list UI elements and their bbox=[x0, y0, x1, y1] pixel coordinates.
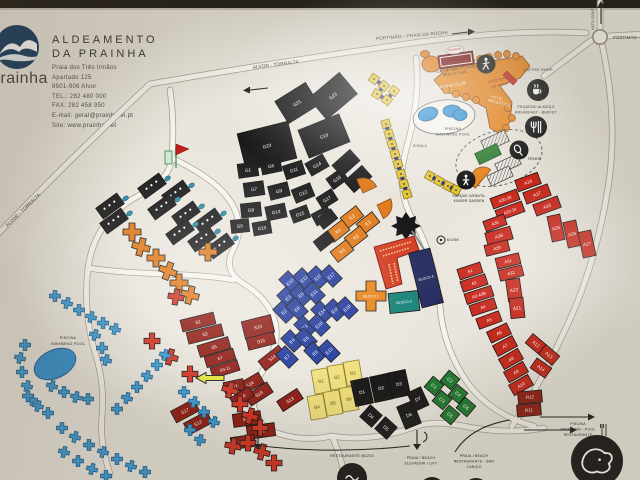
map-label: PISCINA bbox=[570, 422, 586, 426]
building-g23: G23 bbox=[309, 72, 358, 119]
building-label: R11 bbox=[525, 407, 534, 413]
building-label: A21 bbox=[513, 305, 522, 311]
map-label: BREAKFAST - BUFFET bbox=[515, 111, 557, 115]
building bbox=[112, 404, 123, 415]
building bbox=[60, 296, 73, 309]
building-g9: G9 bbox=[268, 182, 291, 200]
swimming-pool bbox=[453, 110, 467, 121]
map-label: PARQUE INFANTIL bbox=[453, 194, 486, 198]
building bbox=[108, 322, 121, 335]
map-label: SWIMMING POOL bbox=[436, 133, 470, 137]
building bbox=[140, 369, 153, 382]
building-label: G8 bbox=[248, 207, 255, 213]
map-label: COFFEE SHOP bbox=[523, 68, 553, 72]
building bbox=[69, 390, 82, 403]
building bbox=[85, 462, 98, 475]
building bbox=[123, 223, 141, 241]
building-bloco-3: BLOCO 3 bbox=[388, 290, 420, 313]
map-label: CANIÇO bbox=[466, 465, 481, 469]
building-g7: G7 bbox=[243, 181, 265, 198]
map-label: TÉNIS bbox=[528, 156, 541, 161]
building bbox=[112, 454, 123, 465]
entrance-sign bbox=[165, 151, 172, 164]
building bbox=[98, 318, 109, 329]
map-label: PRAIA / BEACH bbox=[460, 454, 489, 458]
kiosk-icon-dot bbox=[440, 239, 442, 241]
building bbox=[147, 249, 165, 267]
building bbox=[377, 199, 397, 219]
map-label: ALVOR - TORRALTA bbox=[5, 192, 42, 228]
building bbox=[83, 394, 94, 405]
building bbox=[57, 445, 70, 458]
pool-restaurant-icon bbox=[571, 435, 623, 480]
pedestrian-icon bbox=[477, 55, 496, 74]
building-g1: G1 bbox=[237, 162, 259, 179]
building-r11: R11 bbox=[517, 403, 542, 417]
building bbox=[20, 340, 31, 351]
building bbox=[43, 408, 54, 419]
resort-map-photo: prainha ALDEAMENTO DA PRAINHA Praia dos … bbox=[0, 0, 640, 480]
building-label: G1 bbox=[245, 167, 252, 173]
building-label: G5 bbox=[237, 223, 244, 229]
building-label: R12 bbox=[526, 394, 535, 400]
map-label: PORTIMÃO - PRAIA DA ROCHA bbox=[613, 35, 640, 40]
building bbox=[132, 382, 143, 393]
map-label: SWIMMING POOL bbox=[51, 342, 85, 346]
building bbox=[84, 440, 95, 451]
map-label: PISCINA bbox=[60, 336, 77, 340]
building bbox=[144, 333, 160, 349]
map-label: RESTAURANTE - BAR bbox=[454, 460, 495, 464]
building bbox=[193, 433, 206, 446]
map-label: RESTAURANTE bbox=[564, 433, 593, 437]
building bbox=[13, 351, 26, 364]
kinder-garden-icon bbox=[457, 171, 476, 190]
building bbox=[97, 343, 108, 354]
map-label: KIOSK bbox=[447, 238, 460, 242]
map-label: SWIMMING - POOL bbox=[560, 428, 595, 432]
building bbox=[140, 467, 151, 478]
building-g19: G19 bbox=[298, 114, 350, 158]
building bbox=[68, 430, 81, 443]
building-bloco-1: BLOCO 1 bbox=[356, 281, 386, 311]
building-r12: R12 bbox=[518, 390, 543, 404]
building bbox=[59, 387, 70, 398]
hotel-pool-area bbox=[411, 97, 476, 137]
building bbox=[120, 391, 133, 404]
building bbox=[152, 360, 163, 371]
building-g12: G12 bbox=[291, 183, 315, 203]
building-s13: S13 bbox=[277, 388, 304, 411]
map-label: PEQUENO ALMOÇO bbox=[517, 105, 554, 109]
building bbox=[29, 342, 81, 386]
coffee-icon bbox=[527, 79, 549, 101]
building-a21: A21 bbox=[509, 297, 525, 318]
building-label: G7 bbox=[251, 186, 258, 192]
building-g5: G5 bbox=[230, 219, 249, 234]
roundabout bbox=[593, 30, 607, 44]
map-label: PISCINA bbox=[445, 127, 462, 131]
building bbox=[45, 379, 58, 392]
building-g10: G10 bbox=[252, 220, 272, 236]
building bbox=[266, 455, 282, 471]
map-label: ALTO GOLF bbox=[591, 8, 595, 30]
kiosk-tree-shape bbox=[391, 212, 421, 240]
map-label: ELEVADOR / LIFT bbox=[405, 462, 438, 466]
map-label: ZONA A bbox=[413, 144, 428, 148]
building bbox=[182, 366, 198, 382]
cutlery-icon bbox=[601, 424, 607, 436]
tennis-racket-icon bbox=[510, 141, 529, 160]
building-g11: G11 bbox=[282, 160, 305, 179]
site-map: A18A17A16A30-36A20-34A35A36A29A25A26A27A… bbox=[0, 0, 640, 480]
building bbox=[74, 305, 85, 316]
building bbox=[73, 456, 84, 467]
building bbox=[124, 459, 137, 472]
map-label: PRAIA / BEACH bbox=[407, 456, 436, 460]
map-label: KINDER GARDEN bbox=[454, 199, 485, 203]
building-label: BLOCO 1 bbox=[363, 294, 379, 298]
building bbox=[17, 367, 28, 378]
building bbox=[57, 423, 68, 434]
building-g13: G13 bbox=[265, 203, 287, 221]
building-g8: G8 bbox=[240, 202, 261, 218]
building-a27: A27 bbox=[578, 230, 596, 258]
building-g15: G15 bbox=[289, 205, 310, 223]
building bbox=[50, 291, 61, 302]
building bbox=[179, 387, 190, 398]
building-a25: A25 bbox=[547, 214, 565, 242]
breakfast-icon bbox=[525, 116, 547, 138]
map-label: RESTAURANTE BÚZIO bbox=[330, 453, 374, 458]
